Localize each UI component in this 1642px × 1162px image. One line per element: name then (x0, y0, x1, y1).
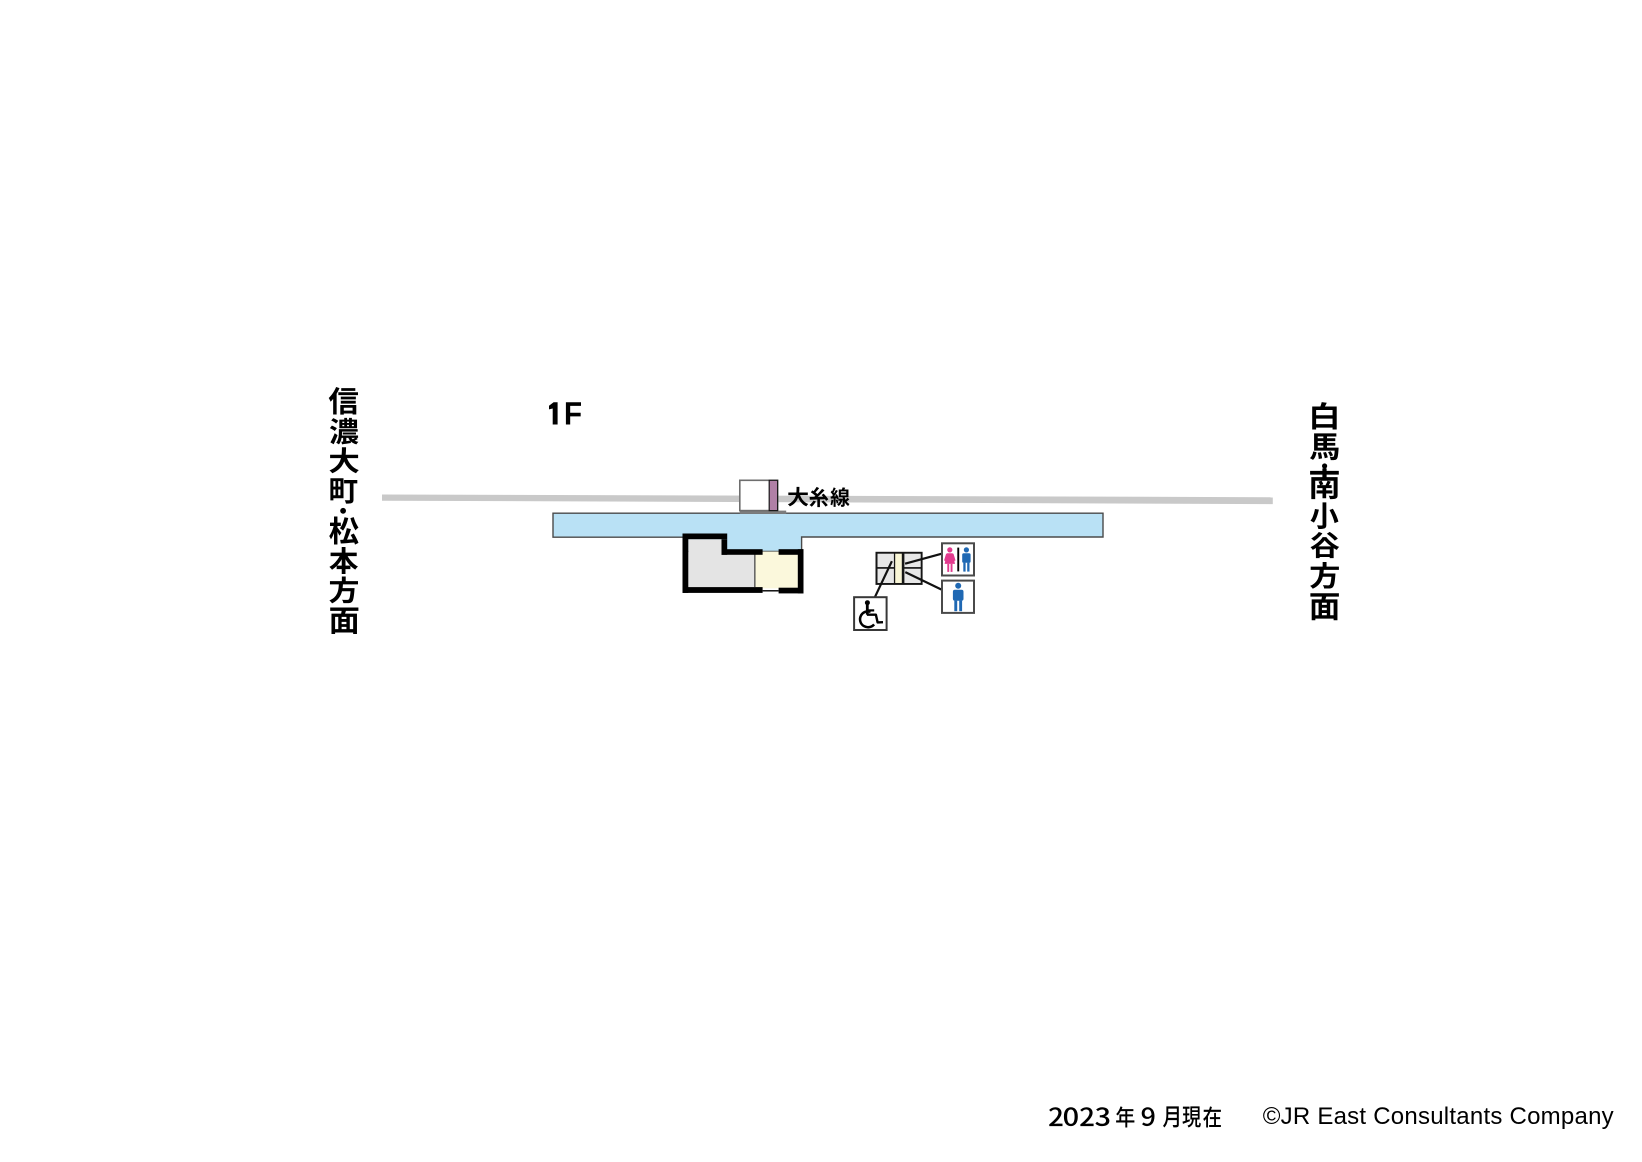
svg-text:©JR East Consultants Company: ©JR East Consultants Company (1263, 1103, 1614, 1130)
